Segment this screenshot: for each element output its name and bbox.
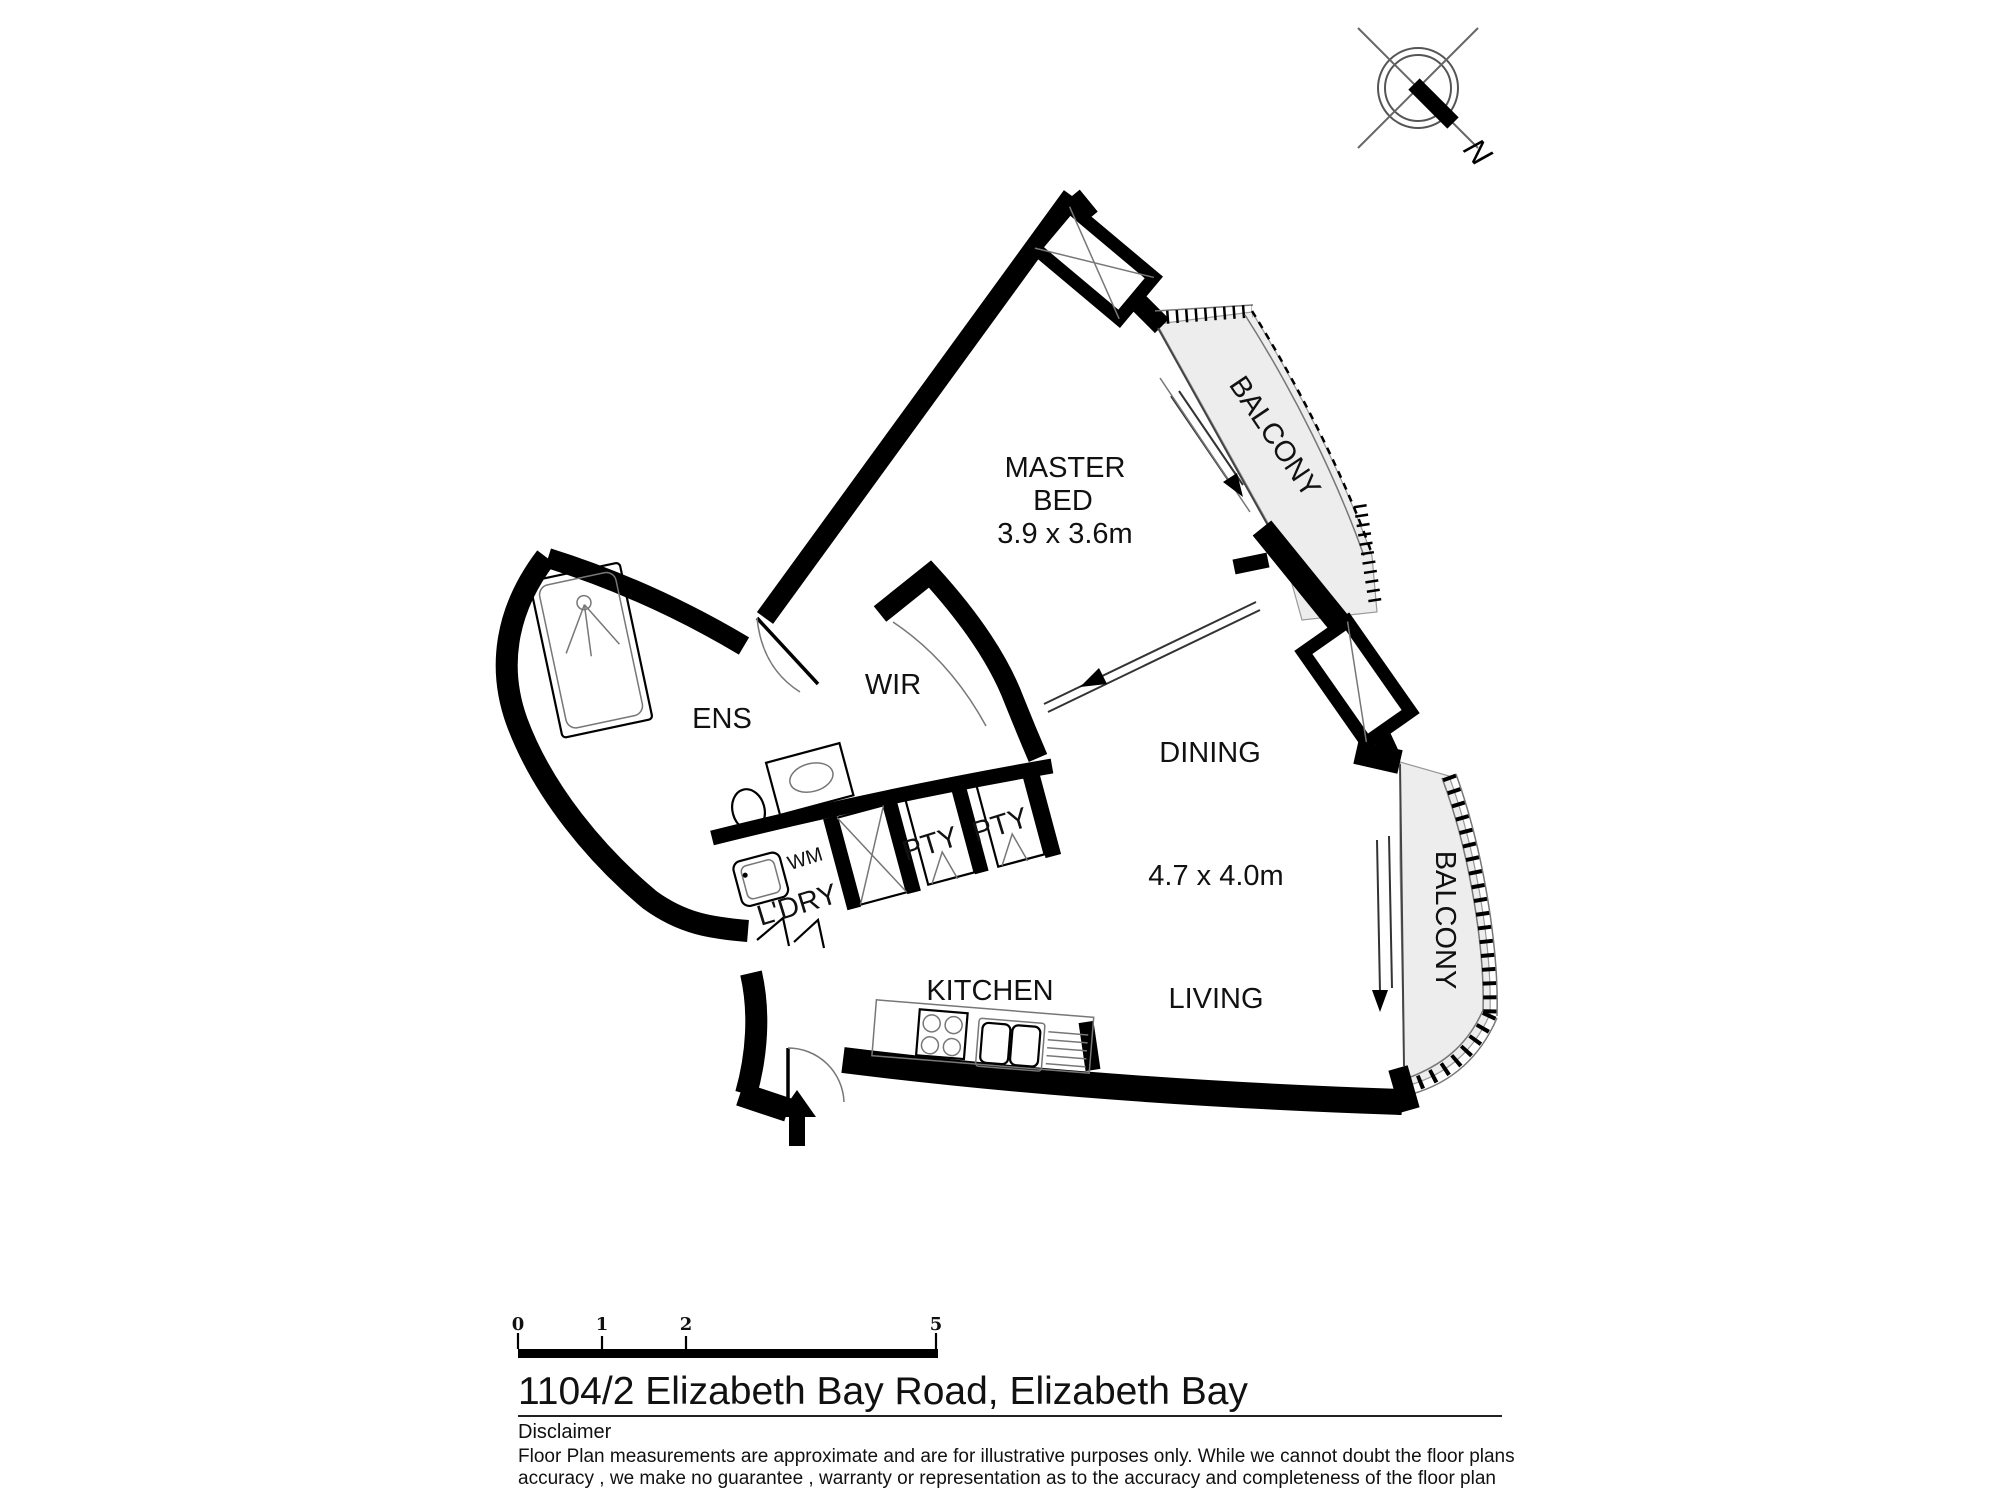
compass-north-label: N xyxy=(1457,131,1500,173)
dining-window xyxy=(1303,621,1410,742)
disclaimer-line2: accuracy , we make no guarantee , warran… xyxy=(518,1468,1496,1489)
balcony-top-edge-line xyxy=(1155,305,1253,311)
ens-door-leaf xyxy=(757,618,818,684)
living-label: LIVING xyxy=(1168,983,1263,1015)
exterior-wall-south xyxy=(843,1060,1402,1102)
disclaimer-heading: Disclaimer xyxy=(518,1421,612,1443)
scale-tick-0: 0 xyxy=(512,1314,525,1335)
entry-left-wall-cap xyxy=(740,1094,788,1110)
dining-label: DINING xyxy=(1159,737,1261,769)
pantry1-label: PTY xyxy=(899,821,962,868)
scale-bar: 0 1 2 5 xyxy=(512,1314,943,1358)
slide-direction-arrow-icon xyxy=(1080,668,1107,687)
scale-bar-ticks xyxy=(518,1333,936,1349)
disclaimer-line1: Floor Plan measurements are approximate … xyxy=(518,1446,1515,1467)
scale-bar-line xyxy=(518,1349,938,1358)
floor-plan-page: N xyxy=(0,0,2000,1500)
wir-label: WIR xyxy=(865,669,921,701)
slide-direction-arrow-icon xyxy=(1372,990,1388,1012)
laundry-label: L'DRY xyxy=(753,878,841,933)
master-suite-sliding-door xyxy=(1044,602,1260,712)
scale-tick-2: 2 xyxy=(680,1314,693,1335)
dining-dimensions: 4.7 x 4.0m xyxy=(1148,860,1283,892)
washing-machine-label: WM xyxy=(785,844,825,875)
scale-tick-1: 1 xyxy=(596,1314,609,1335)
master-bed-label-line2: BED xyxy=(1033,485,1093,517)
kitchen-label: KITCHEN xyxy=(926,975,1053,1007)
ens-label: ENS xyxy=(692,703,752,735)
floor-plan-canvas: N xyxy=(0,0,2000,1500)
exterior-wall-west-lower xyxy=(746,973,756,1094)
exterior-wall-northwest xyxy=(765,196,1072,618)
balcony-right-top-cap xyxy=(1356,752,1400,762)
page-title: 1104/2 Elizabeth Bay Road, Elizabeth Bay xyxy=(518,1370,1248,1413)
living-sliding-door xyxy=(1377,836,1392,992)
wir-wall xyxy=(880,574,1038,758)
scale-tick-5: 5 xyxy=(930,1314,943,1335)
balcony-right-label: BALCONY xyxy=(1429,851,1461,990)
shower-head-icon xyxy=(576,594,593,611)
balcony-top-floor xyxy=(1157,312,1377,620)
footer: 1104/2 Elizabeth Bay Road, Elizabeth Bay… xyxy=(518,1370,1515,1489)
master-bed-label-line1: MASTER xyxy=(1005,452,1126,484)
compass-rose: N xyxy=(1358,28,1500,173)
master-bed-dimensions: 3.9 x 3.6m xyxy=(997,518,1132,550)
pantry2-label: PTY xyxy=(969,802,1032,849)
wall-nib xyxy=(1234,560,1268,567)
